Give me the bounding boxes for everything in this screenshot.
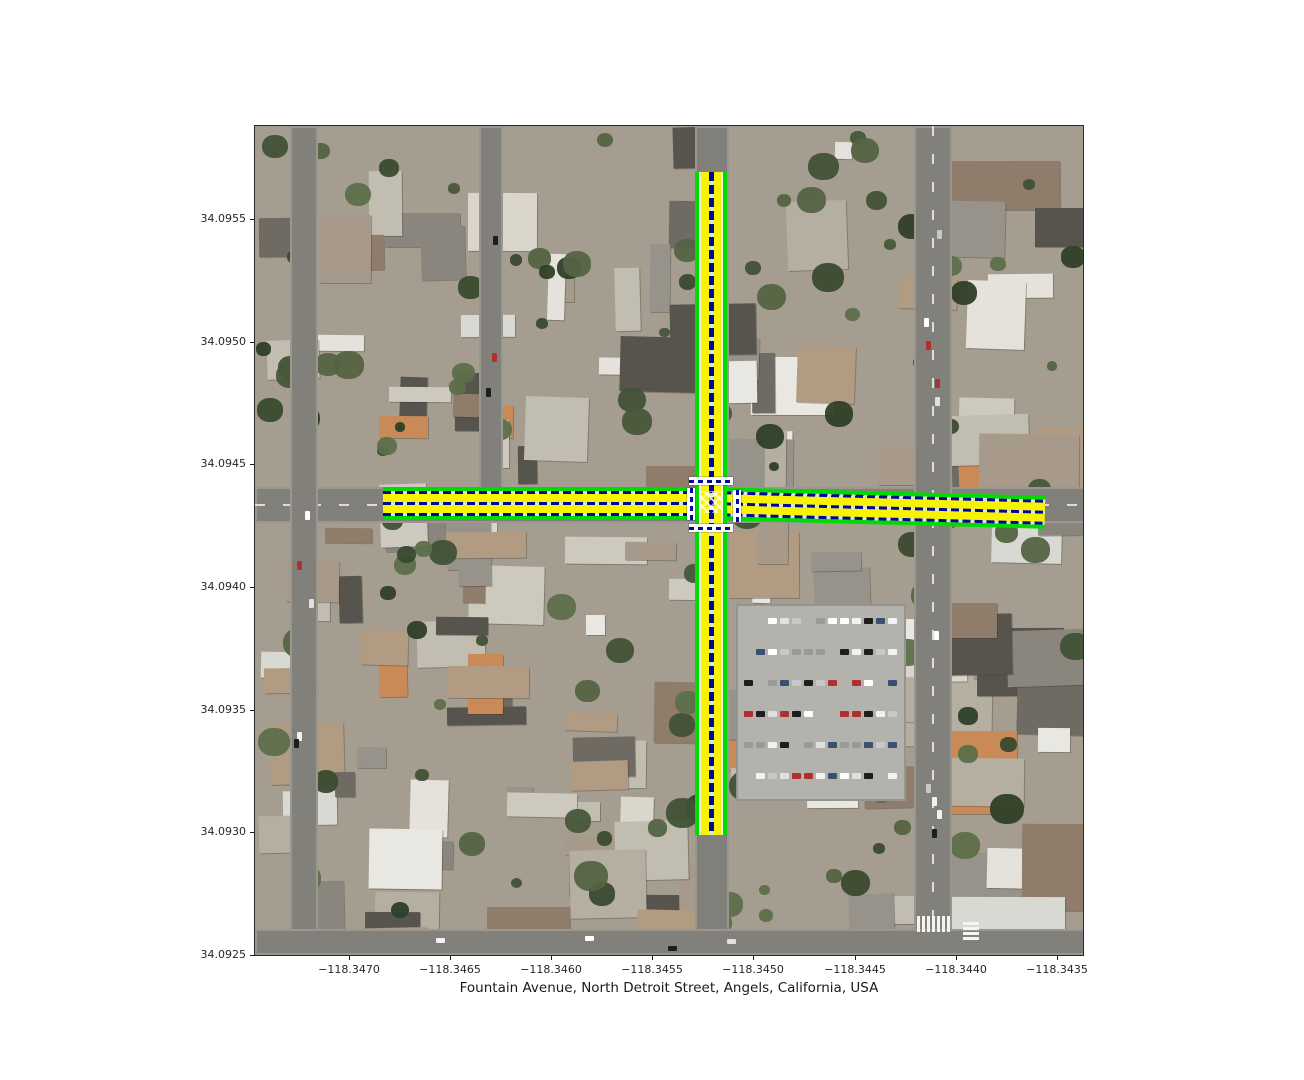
car — [305, 511, 310, 520]
parked-car — [756, 773, 765, 779]
parked-car — [840, 618, 849, 624]
tree-canopy — [873, 843, 885, 854]
parked-car — [864, 680, 873, 686]
parked-car — [804, 711, 813, 717]
parked-car — [840, 773, 849, 779]
parked-car — [888, 680, 897, 686]
parked-car — [804, 649, 813, 655]
parked-car — [888, 618, 897, 624]
parked-car — [756, 649, 765, 655]
tree-canopy — [397, 546, 416, 563]
x-tick-mark — [753, 956, 754, 960]
building — [586, 615, 605, 635]
car — [924, 318, 929, 327]
x-tick-mark — [652, 956, 653, 960]
parked-car — [816, 649, 825, 655]
tree-canopy — [1047, 361, 1057, 370]
fountain-avenue-street — [255, 487, 1084, 523]
building — [571, 760, 629, 791]
tree-canopy — [951, 281, 978, 305]
formosa-avenue-street — [479, 126, 503, 491]
tree-canopy — [759, 885, 770, 895]
building — [369, 171, 402, 236]
tree-canopy — [257, 398, 283, 421]
tree-canopy — [606, 638, 634, 664]
figure-canvas: −118.3470−118.3465−118.3460−118.3455−118… — [0, 0, 1304, 1080]
tree-canopy — [622, 408, 652, 435]
zebra-stripe — [942, 916, 945, 932]
tree-canopy — [648, 819, 667, 836]
tree-canopy — [851, 138, 879, 164]
car — [585, 936, 594, 941]
tree-canopy — [950, 832, 980, 859]
zebra-stripe — [937, 916, 940, 932]
parked-car — [876, 742, 885, 748]
y-tick-mark — [250, 342, 254, 343]
zebra-stripe — [917, 916, 920, 932]
car — [926, 784, 931, 793]
y-tick-mark — [250, 587, 254, 588]
zebra-stripe — [963, 937, 979, 940]
axis-title: Fountain Avenue, North Detroit Street, A… — [254, 980, 1084, 996]
tree-canopy — [1060, 633, 1084, 660]
parked-car — [828, 773, 837, 779]
parked-car — [840, 711, 849, 717]
tree-canopy — [563, 251, 591, 277]
car — [812, 496, 821, 501]
parked-car — [840, 742, 849, 748]
x-tick-label: −118.3470 — [294, 962, 404, 977]
parked-car — [864, 742, 873, 748]
parked-car — [816, 773, 825, 779]
car — [926, 341, 931, 350]
parked-car — [828, 618, 837, 624]
parked-car — [780, 742, 789, 748]
parked-car — [888, 773, 897, 779]
tree-canopy — [808, 153, 838, 180]
tree-canopy — [995, 522, 1018, 543]
building — [727, 360, 757, 402]
tree-canopy — [797, 187, 826, 213]
tree-canopy — [958, 745, 978, 763]
building — [318, 214, 371, 282]
tree-canopy — [841, 870, 871, 897]
tree-canopy — [659, 328, 669, 337]
parked-car — [852, 649, 861, 655]
car — [716, 810, 721, 819]
parked-car — [804, 773, 813, 779]
tree-canopy — [345, 183, 371, 207]
tree-canopy — [1023, 179, 1035, 190]
building — [524, 396, 589, 462]
y-tick-label: 34.0945 — [144, 456, 246, 471]
x-tick-mark — [450, 956, 451, 960]
parked-car — [888, 711, 897, 717]
building — [335, 772, 355, 797]
building — [835, 142, 852, 159]
detroit-street — [695, 126, 729, 956]
car — [932, 797, 937, 806]
tree-canopy — [669, 713, 695, 737]
tree-canopy — [539, 265, 554, 279]
x-tick-label: −118.3465 — [395, 962, 505, 977]
building — [389, 387, 452, 403]
parked-car — [780, 649, 789, 655]
y-tick-mark — [250, 464, 254, 465]
y-tick-mark — [250, 832, 254, 833]
car — [492, 353, 497, 362]
tree-canopy — [990, 257, 1006, 271]
y-tick-label: 34.0950 — [144, 334, 246, 349]
tree-canopy — [866, 191, 887, 210]
parked-car — [804, 680, 813, 686]
car — [640, 496, 649, 501]
parked-car — [792, 773, 801, 779]
building — [446, 532, 526, 558]
tree-canopy — [845, 308, 860, 321]
parked-car — [840, 649, 849, 655]
building — [796, 345, 856, 404]
car — [294, 739, 299, 748]
car — [934, 631, 939, 640]
parked-car — [852, 618, 861, 624]
parked-car — [792, 680, 801, 686]
tree-canopy — [510, 254, 523, 265]
building — [565, 712, 617, 731]
tree-canopy — [826, 869, 841, 883]
parked-car — [864, 649, 873, 655]
building — [620, 336, 702, 393]
tree-canopy — [452, 363, 474, 383]
parked-car — [768, 649, 777, 655]
parking-lot — [736, 604, 906, 801]
car — [297, 561, 302, 570]
parked-car — [864, 711, 873, 717]
parked-car — [744, 711, 753, 717]
car — [309, 599, 314, 608]
parked-car — [852, 773, 861, 779]
tree-canopy — [812, 263, 844, 292]
car — [932, 829, 937, 838]
parked-car — [852, 711, 861, 717]
tree-canopy — [597, 831, 613, 845]
aerial-basemap — [254, 125, 1084, 956]
building — [420, 225, 465, 280]
x-tick-label: −118.3445 — [800, 962, 910, 977]
tree-canopy — [990, 794, 1024, 824]
tree-canopy — [459, 832, 485, 856]
building — [649, 244, 670, 312]
building — [361, 629, 409, 665]
zebra-stripe — [963, 922, 979, 925]
parked-car — [852, 742, 861, 748]
x-tick-mark — [1057, 956, 1058, 960]
tree-canopy — [574, 861, 608, 891]
building — [625, 542, 676, 560]
parked-car — [876, 618, 885, 624]
parked-car — [816, 742, 825, 748]
building — [369, 828, 443, 889]
tree-canopy — [1000, 737, 1017, 752]
building — [339, 575, 364, 622]
parked-car — [744, 742, 753, 748]
y-tick-label: 34.0955 — [144, 211, 246, 226]
car — [486, 388, 491, 397]
tree-canopy — [258, 728, 290, 756]
y-tick-mark — [250, 219, 254, 220]
zebra-stripe — [963, 932, 979, 935]
tree-canopy — [315, 353, 341, 376]
zebra-stripe — [922, 916, 925, 932]
tree-canopy — [745, 261, 761, 275]
car — [935, 379, 940, 388]
tree-canopy — [415, 541, 432, 556]
parked-car — [864, 618, 873, 624]
building — [1035, 208, 1084, 247]
tree-canopy — [597, 133, 613, 148]
car — [668, 946, 677, 951]
tree-canopy — [536, 318, 548, 329]
parked-car — [768, 742, 777, 748]
x-tick-mark — [855, 956, 856, 960]
parked-car — [780, 711, 789, 717]
tree-canopy — [395, 422, 405, 431]
west-residential-street — [290, 126, 318, 956]
parked-car — [876, 649, 885, 655]
tree-canopy — [894, 820, 911, 835]
parked-car — [780, 680, 789, 686]
x-tick-mark — [551, 956, 552, 960]
zebra-stripe — [947, 916, 950, 932]
tree-canopy — [757, 284, 787, 311]
tree-canopy — [380, 586, 395, 600]
car — [937, 230, 942, 239]
parked-car — [756, 711, 765, 717]
tree-canopy — [1061, 246, 1084, 267]
parked-car — [888, 742, 897, 748]
building — [447, 666, 529, 698]
x-tick-label: −118.3435 — [1002, 962, 1112, 977]
y-tick-mark — [250, 710, 254, 711]
car — [935, 397, 940, 406]
car — [455, 500, 464, 505]
tree-canopy — [407, 621, 427, 639]
x-tick-label: −118.3455 — [597, 962, 707, 977]
parked-car — [744, 680, 753, 686]
parked-car — [816, 680, 825, 686]
tree-canopy — [379, 159, 399, 177]
parked-car — [768, 680, 777, 686]
parked-car — [756, 742, 765, 748]
south-street — [255, 929, 1084, 955]
building — [811, 552, 861, 571]
tree-canopy — [756, 424, 784, 450]
y-tick-label: 34.0935 — [144, 702, 246, 717]
building — [259, 815, 294, 853]
tree-canopy — [476, 635, 488, 646]
parked-car — [876, 711, 885, 717]
car — [708, 666, 713, 675]
parked-car — [780, 773, 789, 779]
parked-car — [792, 649, 801, 655]
parked-car — [828, 680, 837, 686]
tree-canopy — [256, 342, 271, 355]
y-tick-label: 34.0930 — [144, 824, 246, 839]
tree-canopy — [884, 239, 896, 250]
car — [493, 236, 498, 245]
tree-canopy — [377, 437, 397, 455]
x-tick-label: −118.3450 — [698, 962, 808, 977]
parked-car — [852, 680, 861, 686]
car — [727, 939, 736, 944]
building — [614, 268, 640, 332]
y-tick-label: 34.0925 — [144, 947, 246, 962]
car — [436, 938, 445, 943]
building — [436, 616, 489, 635]
parked-car — [792, 618, 801, 624]
building — [324, 527, 371, 543]
tree-canopy — [429, 540, 457, 565]
zebra-stripe — [932, 916, 935, 932]
parked-car — [828, 742, 837, 748]
zebra-stripe — [927, 916, 930, 932]
tree-canopy — [825, 401, 853, 426]
x-tick-label: −118.3440 — [901, 962, 1011, 977]
x-tick-label: −118.3460 — [496, 962, 606, 977]
parked-car — [804, 742, 813, 748]
zebra-stripe — [963, 927, 979, 930]
car — [710, 604, 715, 613]
tree-canopy — [565, 809, 592, 833]
tree-canopy — [958, 707, 977, 724]
building — [316, 335, 364, 351]
parked-car — [888, 649, 897, 655]
tree-canopy — [511, 878, 523, 889]
y-tick-label: 34.0940 — [144, 579, 246, 594]
car — [716, 299, 721, 308]
tree-canopy — [777, 194, 791, 207]
tree-canopy — [575, 680, 600, 702]
x-tick-mark — [349, 956, 350, 960]
tree-canopy — [415, 769, 429, 781]
parked-car — [816, 618, 825, 624]
building — [1038, 728, 1070, 752]
parked-car — [768, 773, 777, 779]
tree-canopy — [547, 594, 576, 620]
building — [357, 747, 386, 769]
parked-car — [768, 711, 777, 717]
parked-car — [768, 618, 777, 624]
tree-canopy — [1021, 537, 1050, 563]
tree-canopy — [448, 183, 460, 194]
parked-car — [780, 618, 789, 624]
car — [937, 810, 942, 819]
tree-canopy — [434, 699, 446, 710]
tree-canopy — [679, 274, 697, 290]
parked-car — [792, 711, 801, 717]
street-center-line — [255, 504, 1084, 506]
tree-canopy — [262, 135, 288, 158]
building — [948, 603, 997, 638]
tree-canopy — [759, 909, 773, 922]
parked-car — [864, 773, 873, 779]
x-tick-mark — [956, 956, 957, 960]
car — [500, 506, 509, 511]
y-tick-mark — [250, 955, 254, 956]
